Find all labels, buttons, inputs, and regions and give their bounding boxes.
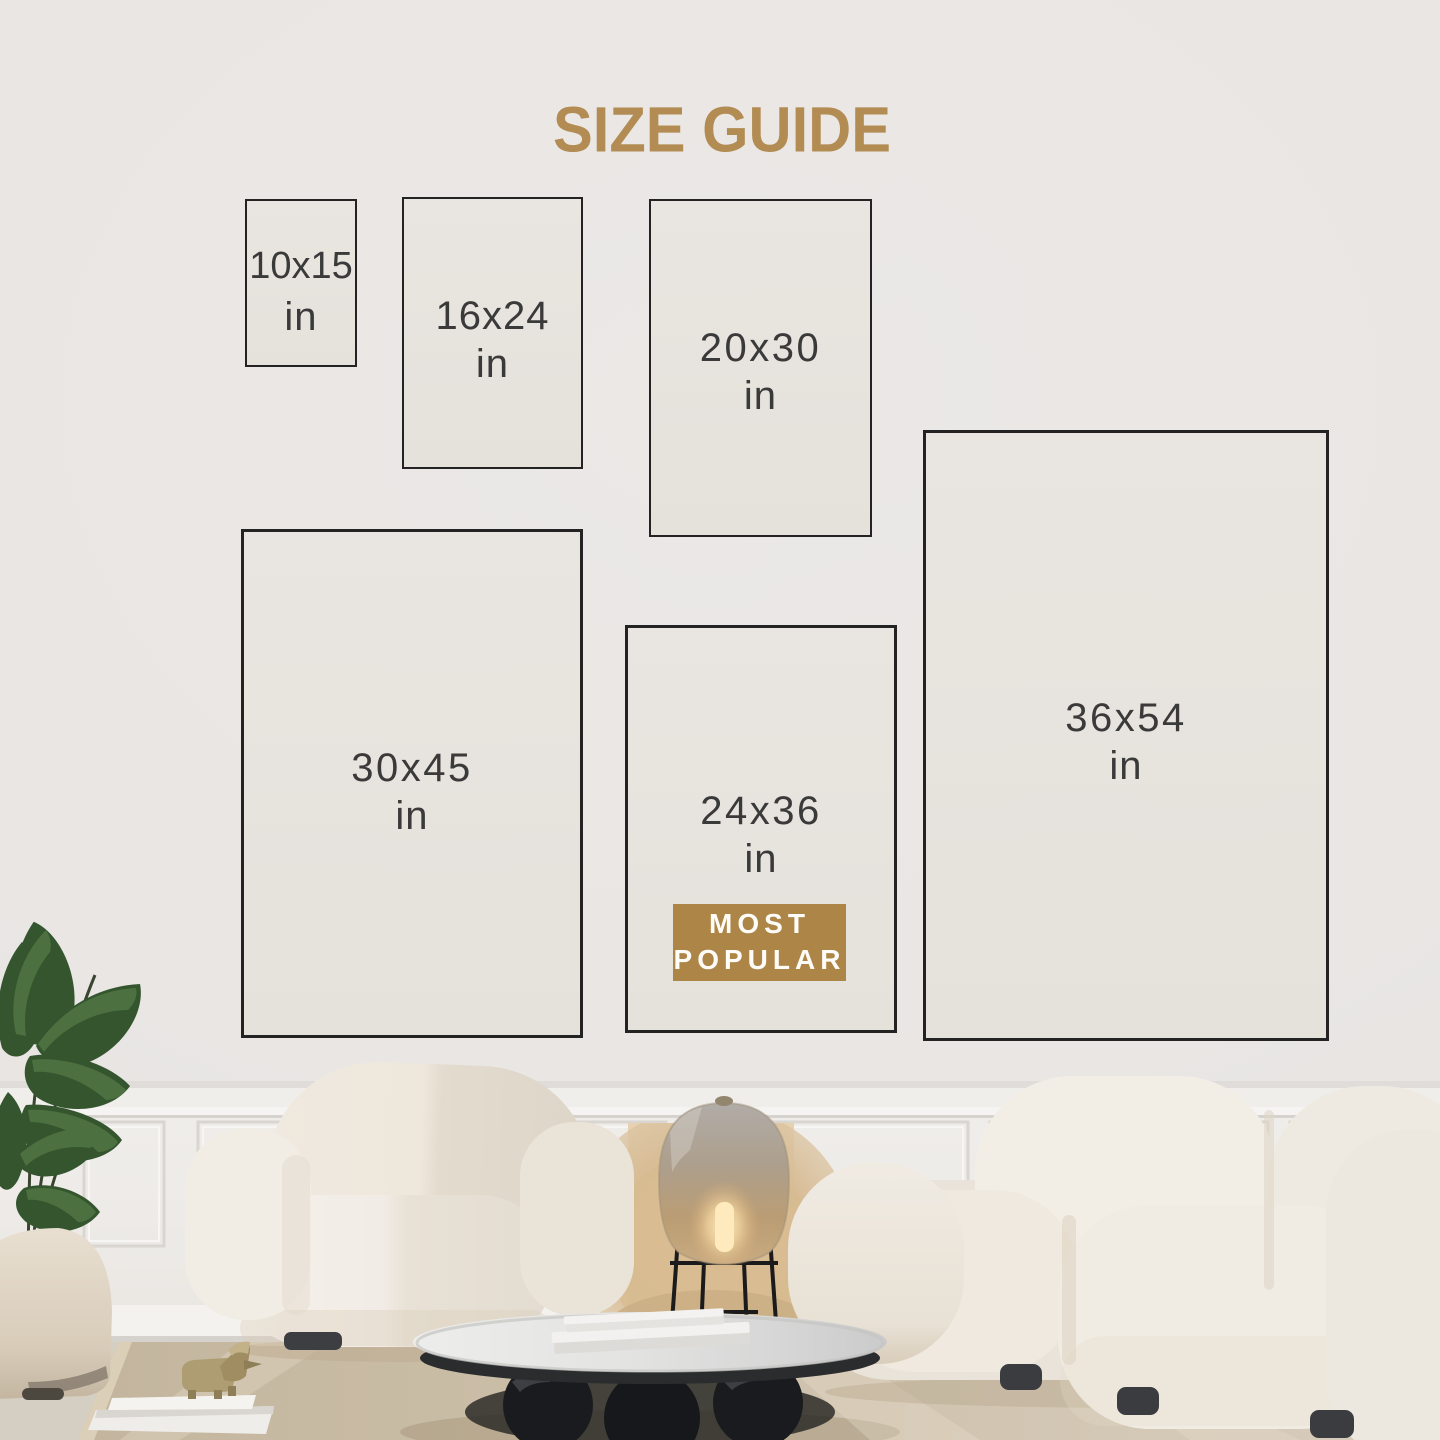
svg-text:SIZE GUIDE: SIZE GUIDE	[553, 96, 891, 166]
